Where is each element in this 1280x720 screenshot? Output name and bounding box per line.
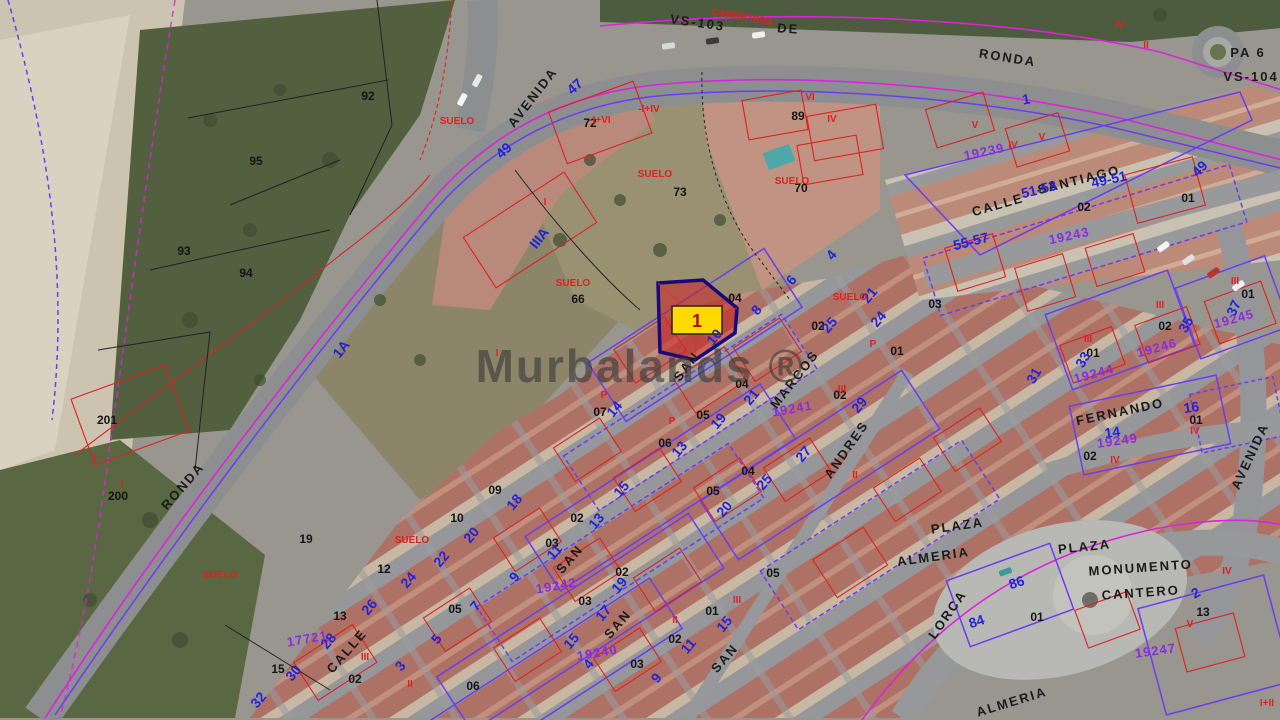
note-label: V: [1187, 619, 1194, 630]
roundabout-center: [1210, 44, 1226, 60]
parcel-number: 02: [348, 672, 362, 686]
map-viewport[interactable]: 1 VS-103DERONDAPA 6VS-104AVENIDACALLESAN…: [0, 0, 1280, 720]
note-label: I: [496, 348, 499, 359]
road-branch-top: [470, 0, 483, 130]
parcel-number: 05: [706, 484, 720, 498]
note-label: II: [1143, 40, 1149, 51]
parcel-number: 04: [728, 291, 742, 305]
street-label: PA 6: [1230, 45, 1265, 60]
note-label: SUELO: [556, 278, 591, 289]
parcel-number: 04: [741, 464, 755, 478]
parcel-number: 02: [570, 511, 584, 525]
parcel-number: 94: [239, 266, 253, 280]
note-label: P: [870, 339, 877, 350]
parcel-number: 03: [578, 594, 592, 608]
note-label: I: [544, 197, 547, 208]
note-label: SUELO: [638, 169, 673, 180]
parcel-number: 10: [450, 511, 464, 525]
note-label: V: [1039, 132, 1046, 143]
parcel-number: 03: [630, 657, 644, 671]
note-label: III: [733, 595, 742, 606]
note-label: SUELO: [440, 116, 475, 127]
parcel-number: 03: [928, 297, 942, 311]
parcel-number: 01: [1181, 191, 1195, 205]
house-number: 16: [1182, 398, 1200, 416]
note-label: I: [94, 453, 97, 464]
note-label: SUELO: [833, 292, 868, 303]
parcel-number: 01: [1241, 287, 1255, 301]
parcel-number: 19: [299, 532, 313, 546]
note-label: II: [672, 615, 678, 626]
note-label: -I+VI: [589, 115, 611, 126]
note-label: V: [972, 120, 979, 131]
note-label: I: [121, 479, 124, 490]
parcel-number: 13: [1196, 605, 1210, 619]
note-label: IV: [1190, 426, 1200, 437]
cadastral-overlay: 1 VS-103DERONDAPA 6VS-104AVENIDACALLESAN…: [0, 0, 1280, 720]
parcel-number: 09: [488, 483, 502, 497]
parcel-number: 05: [766, 566, 780, 580]
street-label: DE: [777, 20, 800, 37]
note-label: SUELO: [395, 535, 430, 546]
parcel-number: 201: [97, 413, 117, 427]
parcel-number: 02: [1077, 200, 1091, 214]
note-label: III: [1231, 276, 1240, 287]
parcel-number: 93: [177, 244, 191, 258]
note-label: IV: [1008, 140, 1018, 151]
parcel-number: 01: [1030, 610, 1044, 624]
parcel-number: 92: [361, 89, 375, 103]
parcel-number: 66: [571, 292, 585, 306]
parcel-number: 200: [108, 489, 128, 503]
parcel-number: 73: [673, 185, 687, 199]
note-label: III: [838, 384, 847, 395]
note-label: IV: [1110, 455, 1120, 466]
note-label: III: [1156, 300, 1165, 311]
note-label: IV: [1222, 566, 1232, 577]
note-label: II: [852, 470, 858, 481]
note-label: IV: [827, 114, 837, 125]
parcel-number: 12: [377, 562, 391, 576]
note-label: SUELO: [203, 570, 238, 581]
parcel-number: 89: [791, 109, 805, 123]
note-label: III: [361, 652, 370, 663]
parcel-number: 95: [249, 154, 263, 168]
note-label: P: [669, 416, 676, 427]
note-label: VI: [805, 92, 815, 103]
parcel-number: 06: [466, 679, 480, 693]
note-label: II: [407, 679, 413, 690]
monument: [1082, 592, 1098, 608]
parcel-number: 02: [1158, 319, 1172, 333]
parcel-number: 13: [333, 609, 347, 623]
note-label: SUELO: [775, 176, 810, 187]
street-label: VS-104: [1223, 69, 1278, 84]
note-label: I+II: [1260, 698, 1274, 709]
parcel-number: 02: [1083, 449, 1097, 463]
note-label: -I+IV: [638, 104, 660, 115]
parcel-number: 05: [448, 602, 462, 616]
note-label: III: [1084, 334, 1093, 345]
parcel-number: 01: [890, 344, 904, 358]
selected-parcel-badge-label: 1: [692, 311, 702, 331]
note-label: IV: [1115, 20, 1125, 31]
parcel-number: 01: [705, 604, 719, 618]
note-label: P: [601, 390, 608, 401]
